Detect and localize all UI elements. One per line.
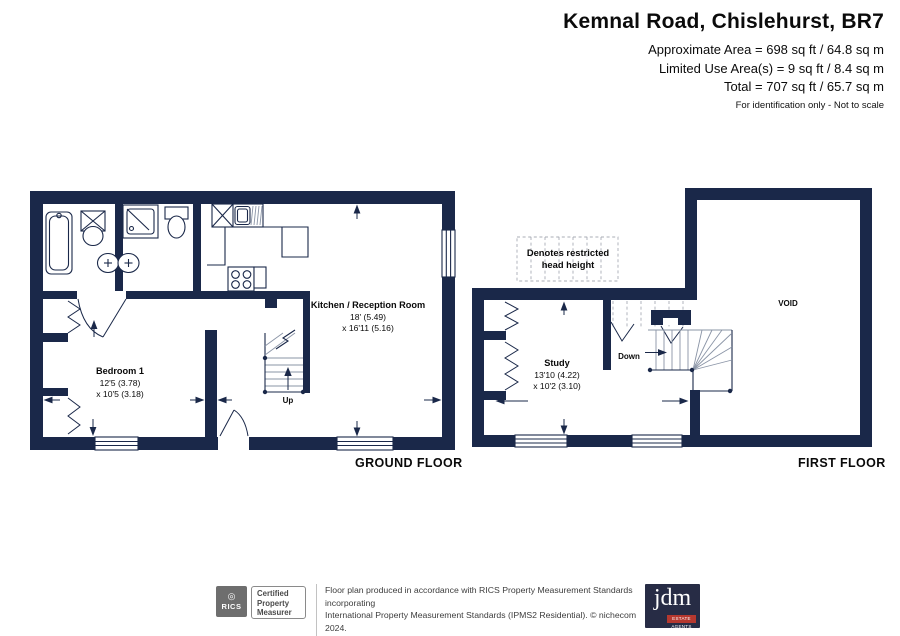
floorplan-page: Kemnal Road, Chislehurst, BR7 Approximat…: [0, 0, 900, 636]
header: Kemnal Road, Chislehurst, BR7 Approximat…: [563, 10, 884, 111]
bathtub-symbol: [46, 212, 72, 274]
door-arc: [78, 299, 126, 337]
ground-floor-caption: GROUND FLOOR: [355, 456, 463, 470]
void-label: VOID: [778, 299, 798, 308]
svg-text:x 10'2 (3.10): x 10'2 (3.10): [533, 381, 581, 391]
stairs-up-label: Up: [283, 396, 294, 405]
kitchen-counter: [207, 227, 308, 265]
window: [95, 437, 138, 450]
approximate-area: Approximate Area = 698 sq ft / 64.8 sq m: [563, 41, 884, 60]
bifold-door-symbol: [505, 302, 518, 330]
kitchen-reception-label: Kitchen / Reception Room 18' (5.49) x 16…: [311, 300, 425, 333]
window: [515, 435, 567, 447]
rics-crest-icon: ◎: [228, 592, 236, 601]
restricted-height-legend: Denotes restricted head height: [517, 237, 618, 281]
basin-symbol: [98, 254, 119, 273]
window: [632, 435, 682, 447]
limited-use-area: Limited Use Area(s) = 9 sq ft / 8.4 sq m: [563, 60, 884, 79]
shower-symbol: [123, 205, 158, 238]
stairs-down-label: Down: [618, 352, 640, 361]
svg-text:Kitchen / Reception Room: Kitchen / Reception Room: [311, 300, 425, 310]
rics-logo: ◎ RICS: [216, 586, 247, 617]
bedroom1-label: Bedroom 1 12'5 (3.78) x 10'5 (3.18): [96, 366, 144, 399]
footer-note: Floor plan produced in accordance with R…: [316, 584, 637, 636]
svg-text:13'10 (4.22): 13'10 (4.22): [534, 370, 580, 380]
svg-text:Denotes restricted: Denotes restricted: [527, 247, 610, 258]
jdm-tagline: ESTATE AGENTS: [667, 615, 696, 623]
jdm-brand: jdm: [645, 585, 700, 612]
svg-text:head height: head height: [542, 259, 595, 270]
page-title: Kemnal Road, Chislehurst, BR7: [563, 10, 884, 34]
toilet-symbol: [165, 207, 188, 238]
stairs-down-symbol: Down: [618, 330, 732, 393]
kitchen-sink-symbol: [212, 204, 263, 227]
svg-text:Bedroom 1: Bedroom 1: [96, 366, 144, 376]
bifold-door-symbol: [68, 301, 80, 333]
svg-text:12'5 (3.78): 12'5 (3.78): [100, 378, 141, 388]
footer-note-line1: Floor plan produced in accordance with R…: [325, 584, 637, 609]
svg-text:18' (5.49): 18' (5.49): [350, 312, 386, 322]
toilet-symbol: [81, 211, 105, 246]
bifold-door-symbol: [68, 398, 80, 434]
footer: ◎ RICS Certified Property Measurer Floor…: [216, 584, 700, 632]
footer-note-line2: International Property Measurement Stand…: [325, 609, 637, 634]
first-floor-plan: Down Denotes restricted head height: [468, 183, 888, 453]
certified-measurer-badge: Certified Property Measurer: [251, 586, 306, 619]
basin-symbol: [118, 254, 139, 273]
first-floor-caption: FIRST FLOOR: [798, 456, 886, 470]
window: [442, 230, 455, 277]
rics-certification: ◎ RICS Certified Property Measurer: [216, 584, 306, 619]
jdm-logo: jdm ESTATE AGENTS: [645, 584, 700, 628]
window: [337, 437, 393, 450]
svg-text:x 16'11 (5.16): x 16'11 (5.16): [342, 323, 394, 333]
study-label: Study 13'10 (4.22) x 10'2 (3.10): [533, 358, 581, 391]
ground-floor-plan: Up: [30, 185, 456, 451]
stairs-up-symbol: Up: [263, 330, 305, 405]
ground-openings: [95, 230, 455, 451]
door-arc: [220, 410, 248, 436]
total-area: Total = 707 sq ft / 65.7 sq m: [563, 78, 884, 97]
hob-symbol: [228, 267, 266, 291]
rics-brand: RICS: [222, 602, 242, 611]
door-swing-symbol: [611, 322, 634, 341]
disclaimer: For identification only - Not to scale: [563, 100, 884, 111]
bifold-door-symbol: [505, 342, 518, 390]
svg-text:x 10'5 (3.18): x 10'5 (3.18): [96, 389, 144, 399]
svg-text:Study: Study: [544, 358, 570, 368]
